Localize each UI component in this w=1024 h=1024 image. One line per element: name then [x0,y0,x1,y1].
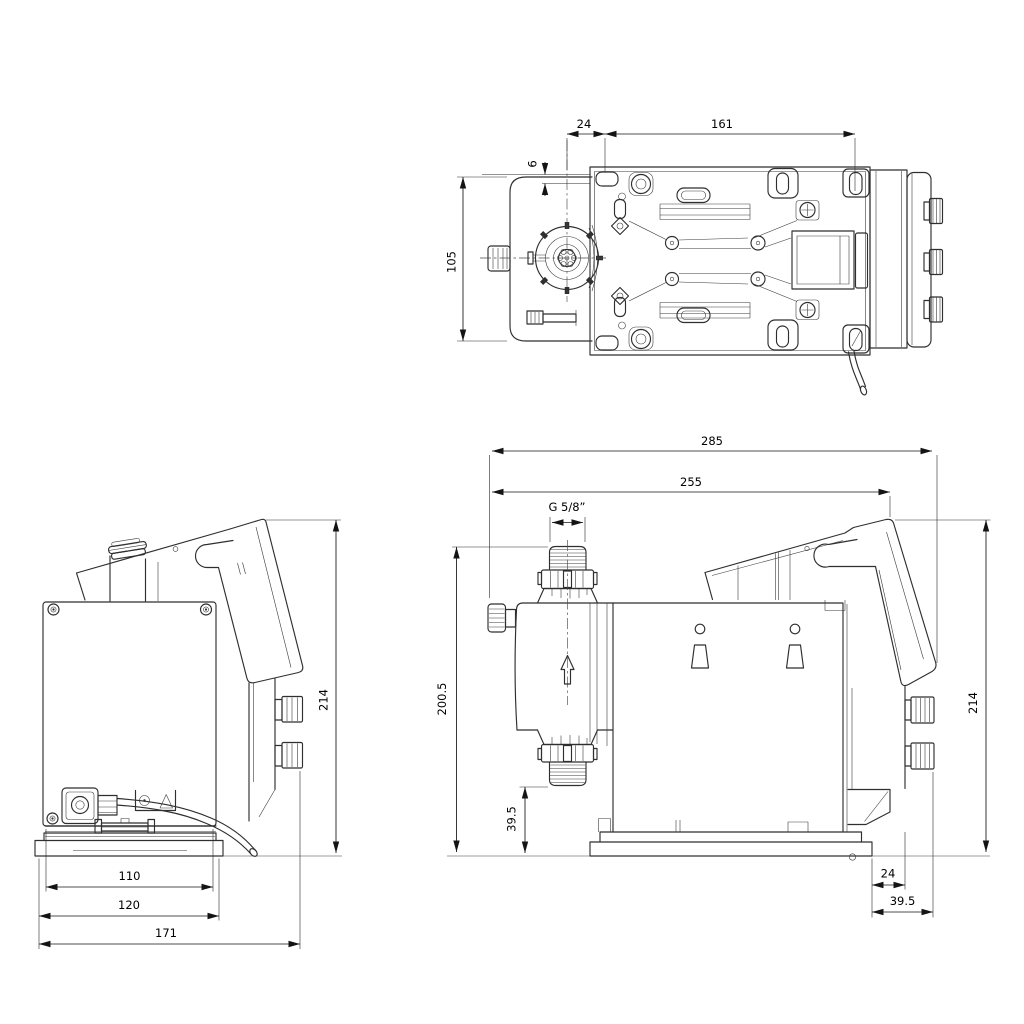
technical-drawing-page: 24 161 6 105 [0,0,1024,1024]
dim-label-side-39-5-upper: 39.5 [505,806,519,832]
base-screw [849,854,855,860]
mounting-slot [596,172,618,186]
deaeration-knob [488,604,516,632]
dim-label-side-285: 285 [701,434,723,448]
dim-label-side-255: 255 [680,475,702,489]
dimension-thread-size: G 5/8” [548,500,585,542]
mounting-rail-front [45,819,216,834]
dimension-discharge-height-200-5: 200.5 [435,547,548,852]
front-view: 214 110 120 171 [35,519,342,949]
rear-housing-side [848,686,934,825]
mounting-plate [590,167,870,355]
front-panel [43,602,216,826]
power-cable-front [117,799,259,858]
panel-screw [201,604,212,615]
connection-knobs-top [924,199,943,323]
power-cable-top [849,351,868,396]
dim-label-front-214: 214 [317,689,331,711]
dimension-valve-to-plate-24: 24 [567,117,605,172]
top-cover-front [77,529,231,601]
connection-knob [905,743,934,769]
dimension-overall-length-285: 285 [490,434,938,663]
mounting-slot [843,169,869,197]
control-housing-top [870,170,931,348]
dimension-mounting-span-161: 161 [605,117,855,191]
dim-label-front-110: 110 [119,869,141,883]
dimension-edge-offset-6: 6 [482,160,590,196]
suction-valve-side [538,730,598,786]
dim-label-top-6: 6 [526,160,540,167]
connection-knob [275,743,303,769]
dimension-panel-width-110: 110 [46,829,213,892]
cover-screw [173,547,178,552]
wall-mount-keyhole [787,645,804,668]
dimension-overall-width-171: 171 [39,771,300,949]
pump-body-side [613,603,847,832]
panel-screw [47,813,58,824]
dimension-body-depth-105: 105 [445,177,508,341]
dim-label-side-24: 24 [881,867,896,881]
mounting-slot [596,336,618,350]
dim-label-thread: G 5/8” [548,500,585,514]
dim-label-top-161: 161 [711,117,733,131]
top-view: 24 161 6 105 [445,117,943,396]
side-view: 285 255 G 5/8” 200.5 39.5 214 [435,434,991,918]
dim-label-front-171: 171 [155,926,177,940]
dimension-overall-height-214-front: 214 [266,520,341,853]
panel-screw [48,604,59,615]
wall-mount-hole [695,624,705,634]
dimension-overall-height-214-side: 214 [895,520,991,852]
keyhole-slot [768,320,798,350]
dim-label-top-24: 24 [577,117,592,131]
dim-label-side-39-5-lower: 39.5 [890,894,916,908]
dim-label-top-105: 105 [445,251,459,273]
dosing-head-side [488,603,613,832]
wall-mount-hole [790,624,800,634]
wall-mount-keyhole [692,645,709,668]
side-body-front [249,679,303,822]
connection-knob [275,697,303,723]
suction-thread [550,762,587,786]
dim-label-side-200-5: 200.5 [435,683,449,716]
discharge-fitting-front [108,537,148,560]
dimension-rear-offset-39-5: 39.5 [872,772,933,918]
drain-valve-top [527,310,576,326]
terminal-box [792,231,854,289]
base-plate-side [590,819,872,861]
cable-gland [62,788,117,824]
dim-label-side-214: 214 [966,692,980,714]
connection-knob [905,697,934,723]
pump-dimensional-drawing: 24 161 6 105 [0,0,1024,1024]
dim-label-front-120: 120 [118,898,140,912]
base-plate-front [35,833,223,856]
control-panel-arm-front [173,519,303,683]
dimension-base-width-120: 120 [39,859,219,921]
dimension-suction-height-39-5: 39.5 [505,787,549,853]
